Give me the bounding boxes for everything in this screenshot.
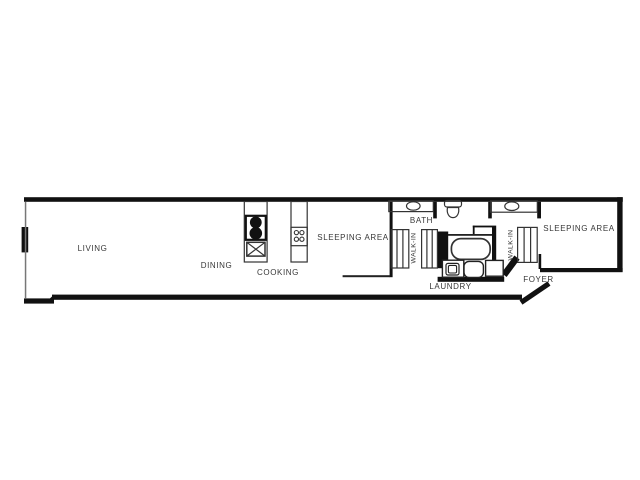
laundry-appliances <box>442 260 503 277</box>
cooktop-icon <box>291 227 307 245</box>
wall-entry-diagonal <box>521 284 549 303</box>
closet-mid-box <box>422 230 438 268</box>
vanity-sink-right-icon <box>491 201 538 212</box>
floorplan: LIVING DINING COOKING SLEEPING AREA BATH… <box>0 0 640 480</box>
stove-burner-icon <box>250 217 262 229</box>
washer-inner2 <box>448 265 456 273</box>
room-label-walk-in-right: WALK-IN <box>509 230 516 261</box>
wall-right <box>617 197 622 272</box>
closet-rod-icon <box>422 230 438 268</box>
vanity-sink-left-icon <box>389 201 434 212</box>
cooktop-burner-icon <box>294 237 298 241</box>
floorplan-image: LIVING DINING COOKING SLEEPING AREA BATH… <box>0 0 640 480</box>
wall-tub-right <box>492 226 496 261</box>
kitchen-counter-right <box>291 202 307 263</box>
exterior-walls <box>22 197 623 303</box>
vanity-basin <box>407 202 421 210</box>
dryer-icon <box>486 260 504 276</box>
room-label-sleeping-area-right: SLEEPING AREA <box>543 225 614 233</box>
room-label-dining: DINING <box>201 262 233 270</box>
room-label-foyer: FOYER <box>523 276 554 284</box>
wall-bottom-left <box>24 298 54 303</box>
bathtub-icon <box>451 239 490 260</box>
cooktop-burner-icon <box>294 231 298 235</box>
toilet-bowl <box>447 208 459 218</box>
cooktop-burner-icon <box>300 231 304 235</box>
wall-foyer-right <box>539 254 542 269</box>
wall-sleeping-right-bottom <box>540 268 623 272</box>
closet-rod-icon <box>391 230 409 268</box>
wall-tub-top <box>448 234 492 236</box>
room-label-sleeping-area-mid: SLEEPING AREA <box>317 234 388 242</box>
closet-left-box <box>391 230 409 268</box>
closet-right-box <box>518 227 538 262</box>
wall-bottom-main <box>52 295 522 300</box>
stove-icon <box>246 216 266 240</box>
wall-tub-l-horiz <box>473 226 492 228</box>
wall-mid-sleeping-bottom <box>343 275 390 277</box>
room-label-cooking: COOKING <box>257 269 299 277</box>
room-label-laundry: LAUNDRY <box>429 283 471 291</box>
stove-burner-icon <box>250 227 263 240</box>
closet-rod-icon <box>518 227 538 262</box>
kitchen-sink-icon <box>247 242 265 256</box>
washer-icon <box>442 260 463 277</box>
room-label-walk-in-left: WALK-IN <box>412 233 419 264</box>
room-label-bath: BATH <box>410 217 433 225</box>
wall-left-thin <box>25 202 27 299</box>
laundry-tub-icon <box>464 261 483 277</box>
room-label-living: LIVING <box>78 245 108 253</box>
toilet-icon <box>445 201 462 218</box>
cooktop-burner-icon <box>300 237 304 241</box>
vanity-basin <box>505 202 519 211</box>
